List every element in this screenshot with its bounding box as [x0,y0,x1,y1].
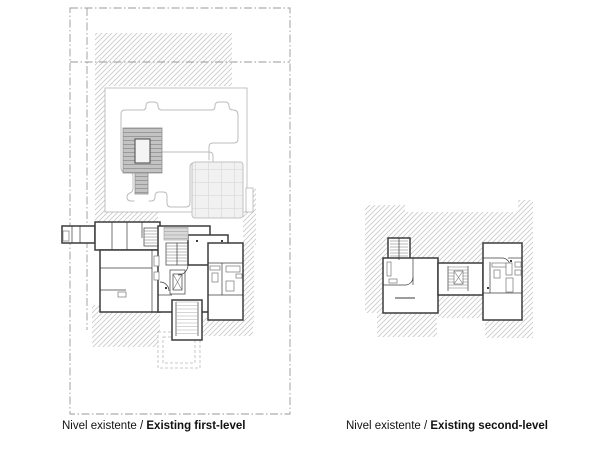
hatch-left-strip [95,86,105,215]
caption-first-level: Nivel existente / Existing first-level [62,420,245,432]
hatch-right-of-house [243,245,254,322]
garden-notch [246,188,253,212]
hatch-left-strip [365,260,383,313]
entry-deck [164,227,188,240]
hatch-below-right [485,318,533,338]
caption-second-level-prefix: Nivel existente / [346,420,430,432]
caption-first-level-title: Existing first-level [146,420,245,432]
entry-corridor [172,300,202,340]
drawing-sheet: Nivel existente / Existing first-level N… [0,0,600,450]
first-level-plan-drawing [0,0,340,450]
left-block [100,250,160,312]
caption-second-level: Nivel existente / Existing second-level [346,420,548,432]
porch-inner [163,337,195,363]
deck-steps [135,173,148,194]
caption-first-level-prefix: Nivel existente / [62,420,146,432]
hatch-top-band [95,33,232,86]
caption-second-level-title: Existing second-level [430,420,548,432]
pool [135,139,150,163]
hatch-below-left [377,313,437,337]
second-level-plan-drawing [340,0,600,450]
right-block [483,243,522,320]
hatch-below-corridor [438,295,485,318]
pergola-grid [192,162,243,218]
